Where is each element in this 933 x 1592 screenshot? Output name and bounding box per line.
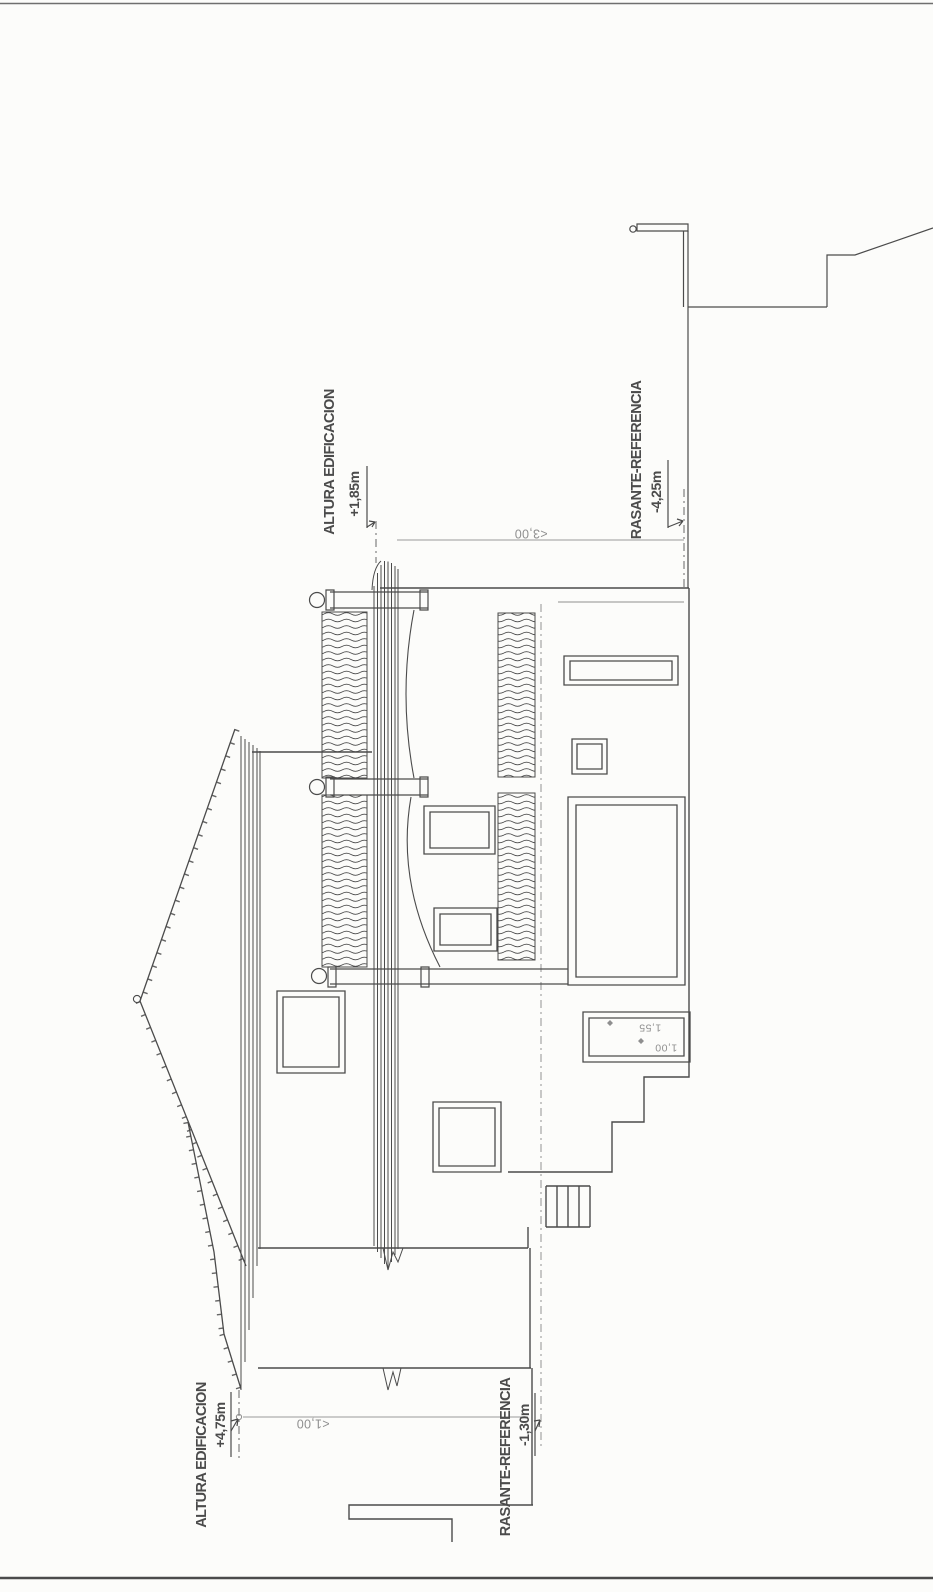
- paper-background: [0, 0, 933, 1592]
- pool-dimension-upper: 1,55: [639, 1021, 661, 1033]
- upper-grade-value: -4,25m: [648, 471, 664, 513]
- pool-dimension-lower: 1,00: [655, 1041, 677, 1053]
- thatch-band: [498, 613, 535, 777]
- eave-offset-dimension: <1,00: [296, 1417, 329, 1431]
- bay-width-dimension: <3,00: [514, 527, 547, 541]
- thatch-band: [322, 612, 367, 778]
- lower-grade-label: RASANTE-REFERENCIA: [498, 1377, 514, 1537]
- thatch-band: [498, 793, 535, 960]
- scanned-elevation-sheet: ALTURA EDIFICACION +1,85m RASANTE-REFERE…: [0, 0, 933, 1592]
- upper-grade-label: RASANTE-REFERENCIA: [629, 380, 645, 540]
- architectural-elevation-drawing: ALTURA EDIFICACION +1,85m RASANTE-REFERE…: [0, 0, 933, 1592]
- lower-height-value: +4,75m: [212, 1402, 228, 1447]
- upper-height-label: ALTURA EDIFICACION: [322, 389, 338, 535]
- thatch-band: [322, 795, 367, 967]
- lower-height-label: ALTURA EDIFICACION: [194, 1382, 210, 1528]
- lower-grade-value: -1,30m: [516, 1404, 532, 1446]
- upper-height-value: +1,85m: [346, 471, 362, 516]
